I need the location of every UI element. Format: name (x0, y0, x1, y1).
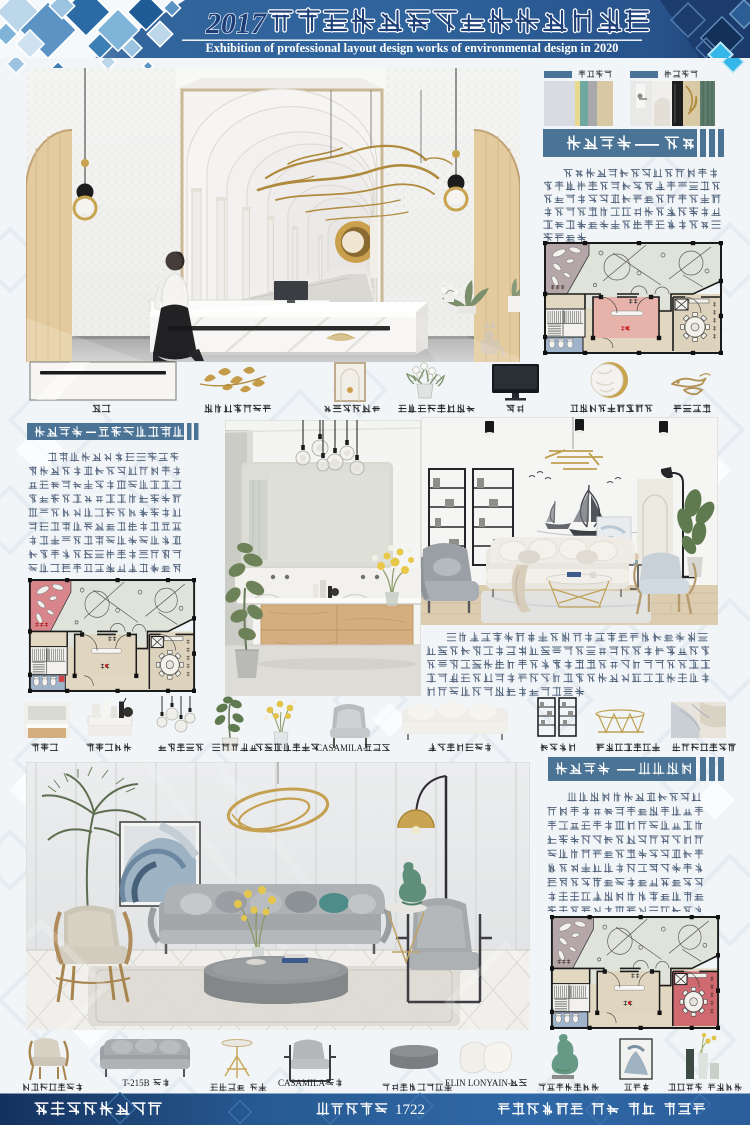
svg-text:Exhibition of professional lay: Exhibition of professional layout design… (206, 41, 619, 55)
svg-text:CASAMILA-: CASAMILA- (278, 1078, 328, 1088)
svg-text:T-215B: T-215B (122, 1078, 149, 1088)
svg-text:ELIN LONYAIN-: ELIN LONYAIN- (445, 1078, 511, 1088)
svg-text:1722: 1722 (395, 1102, 425, 1118)
svg-text:2017: 2017 (205, 7, 267, 40)
svg-text:CASAMILA-: CASAMILA- (316, 743, 366, 753)
